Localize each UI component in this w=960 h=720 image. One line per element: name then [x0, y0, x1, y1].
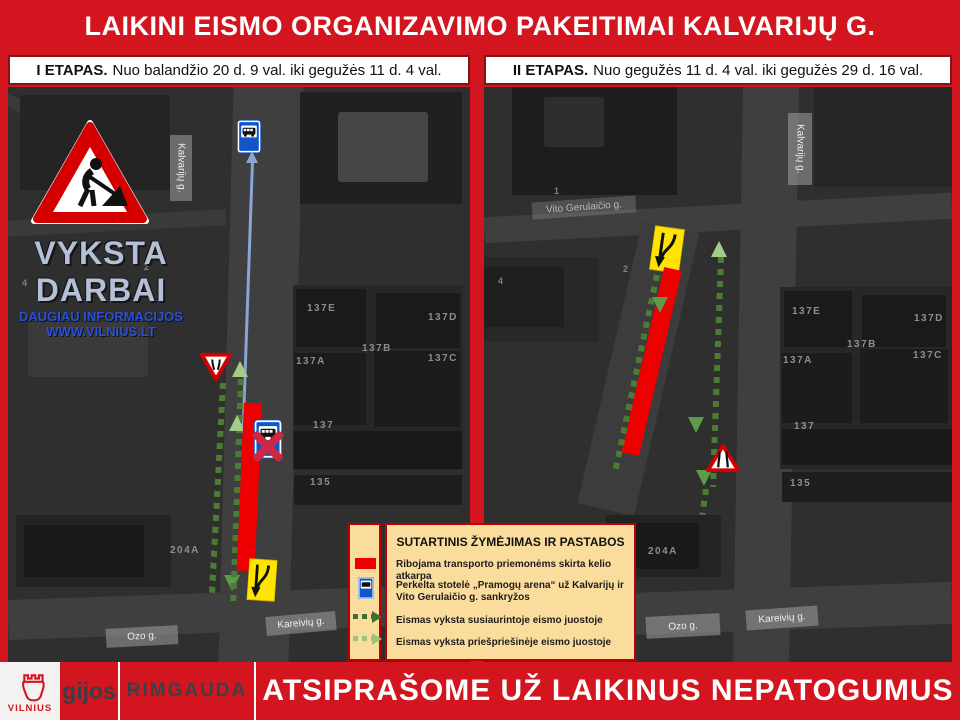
plot-number: 2 [623, 264, 628, 274]
stage-1-name: I ETAPAS. [36, 62, 107, 79]
works-notice-line1: VYKSTA [8, 235, 194, 272]
courtyard [544, 97, 604, 147]
building-label: 137 [313, 420, 334, 431]
contraflow-arrow-up [711, 241, 727, 257]
stage-2-period: Nuo gegužės 11 d. 4 val. iki gegužės 29 … [593, 62, 923, 79]
legend-item: Perkelta stotelė „Pramogų arena“ už Kalv… [396, 580, 630, 604]
legend-light-arrow-head [372, 633, 382, 645]
courtyard [338, 112, 428, 182]
building-label: 137 [794, 421, 815, 432]
bus-stop-sign-new-icon [237, 120, 261, 153]
building-label: 137E [307, 303, 336, 314]
street-label-kalvariju: Kalvarijų g. [170, 135, 192, 201]
works-notice-line2: DARBAI [8, 272, 194, 309]
stage-1-label: I ETAPAS. Nuo balandžio 20 d. 9 val. iki… [8, 55, 470, 85]
building-label: 135 [310, 477, 331, 488]
page-title: LAIKINI EISMO ORGANIZAVIMO PAKEITIMAI KA… [84, 11, 875, 42]
building-label: 204A [170, 545, 200, 556]
street-label-ozo: Ozo g. [645, 613, 720, 639]
legend-item: Eismas vyksta susiaurintoje eismo juosto… [396, 615, 630, 627]
building-204a-inner [24, 525, 144, 577]
contraflow-arrow-up [232, 361, 248, 377]
street-label-ozo: Ozo g. [106, 625, 179, 648]
cancel-x-icon [247, 425, 289, 467]
building-137 [294, 431, 462, 469]
vilnius-castle-icon [13, 668, 47, 702]
vilnius-logo: VILNIUS [0, 662, 60, 720]
contraflow-arrow-down [688, 417, 704, 433]
stage-1-period: Nuo balandžio 20 d. 9 val. iki gegužės 1… [113, 62, 442, 79]
building-label: 137B [847, 339, 877, 350]
roadworks-sign-icon [30, 120, 150, 226]
legend-item: Eismas vyksta priešpriešinėje eismo juos… [396, 637, 630, 649]
plot-number: 1 [554, 186, 559, 196]
building-label: 137B [362, 343, 392, 354]
lane-shift-sign-icon [649, 225, 685, 274]
building-label: 137D [914, 313, 944, 324]
building-block [814, 87, 952, 187]
partner-logo-rimgauda: RIMGAUDA [120, 662, 254, 720]
building-label: 137C [913, 350, 943, 361]
street-label-kalvariju: Kalvarijų g. [788, 113, 812, 185]
building-label: 137A [296, 356, 326, 367]
plot-number: 4 [498, 276, 503, 286]
bus-stop-cancelled [254, 417, 284, 463]
building-label: 137E [792, 306, 821, 317]
apology-message-wrap: ATSIPRAŠOME UŽ LAIKINUS NEPATOGUMUS [256, 662, 960, 720]
lane-shift-sign-icon [247, 558, 278, 602]
road-narrows-sign-icon [706, 443, 740, 473]
legend-panel: SUTARTINIS ŽYMĖJIMAS IR PASTABOS Ribojam… [385, 523, 636, 661]
legend-light-arrow-symbol [353, 636, 373, 641]
header-banner: LAIKINI EISMO ORGANIZAVIMO PAKEITIMAI KA… [0, 0, 960, 53]
legend-dark-arrow-symbol [353, 614, 373, 619]
apology-message: ATSIPRAŠOME UŽ LAIKINUS NEPATOGUMUS [262, 674, 953, 708]
building-label: 137C [428, 353, 458, 364]
legend-symbol-column [348, 523, 381, 661]
building-block [484, 267, 564, 327]
website-text: WWW.VILNIUS.LT [8, 324, 194, 339]
building-label: 204A [648, 546, 678, 557]
legend-bus-stop-symbol [358, 577, 374, 599]
legend-closed-road-symbol [355, 558, 376, 569]
stage-2-name: II ETAPAS. [513, 62, 588, 79]
more-info-text: DAUGIAU INFORMACIJOS [8, 309, 194, 324]
building-137e [784, 291, 852, 347]
stage-2-label: II ETAPAS. Nuo gegužės 11 d. 4 val. iki … [484, 55, 952, 85]
legend-dark-arrow-head [372, 611, 382, 623]
building-label: 137D [428, 312, 458, 323]
building-137 [782, 429, 952, 465]
vilnius-logo-text: VILNIUS [8, 703, 52, 714]
building-137e [296, 289, 366, 347]
building-label: 135 [790, 478, 811, 489]
building-label: 137A [783, 355, 813, 366]
yield-sign-icon [200, 352, 232, 381]
contraflow-arrow-down [652, 297, 668, 313]
contraflow-dots-tail [699, 489, 709, 516]
footer-banner: VILNIUS gijos RIMGAUDA ATSIPRAŠOME UŽ LA… [0, 662, 960, 720]
legend-title: SUTARTINIS ŽYMĖJIMAS IR PASTABOS [387, 535, 634, 549]
partner-logo-gijos: gijos [60, 662, 118, 720]
